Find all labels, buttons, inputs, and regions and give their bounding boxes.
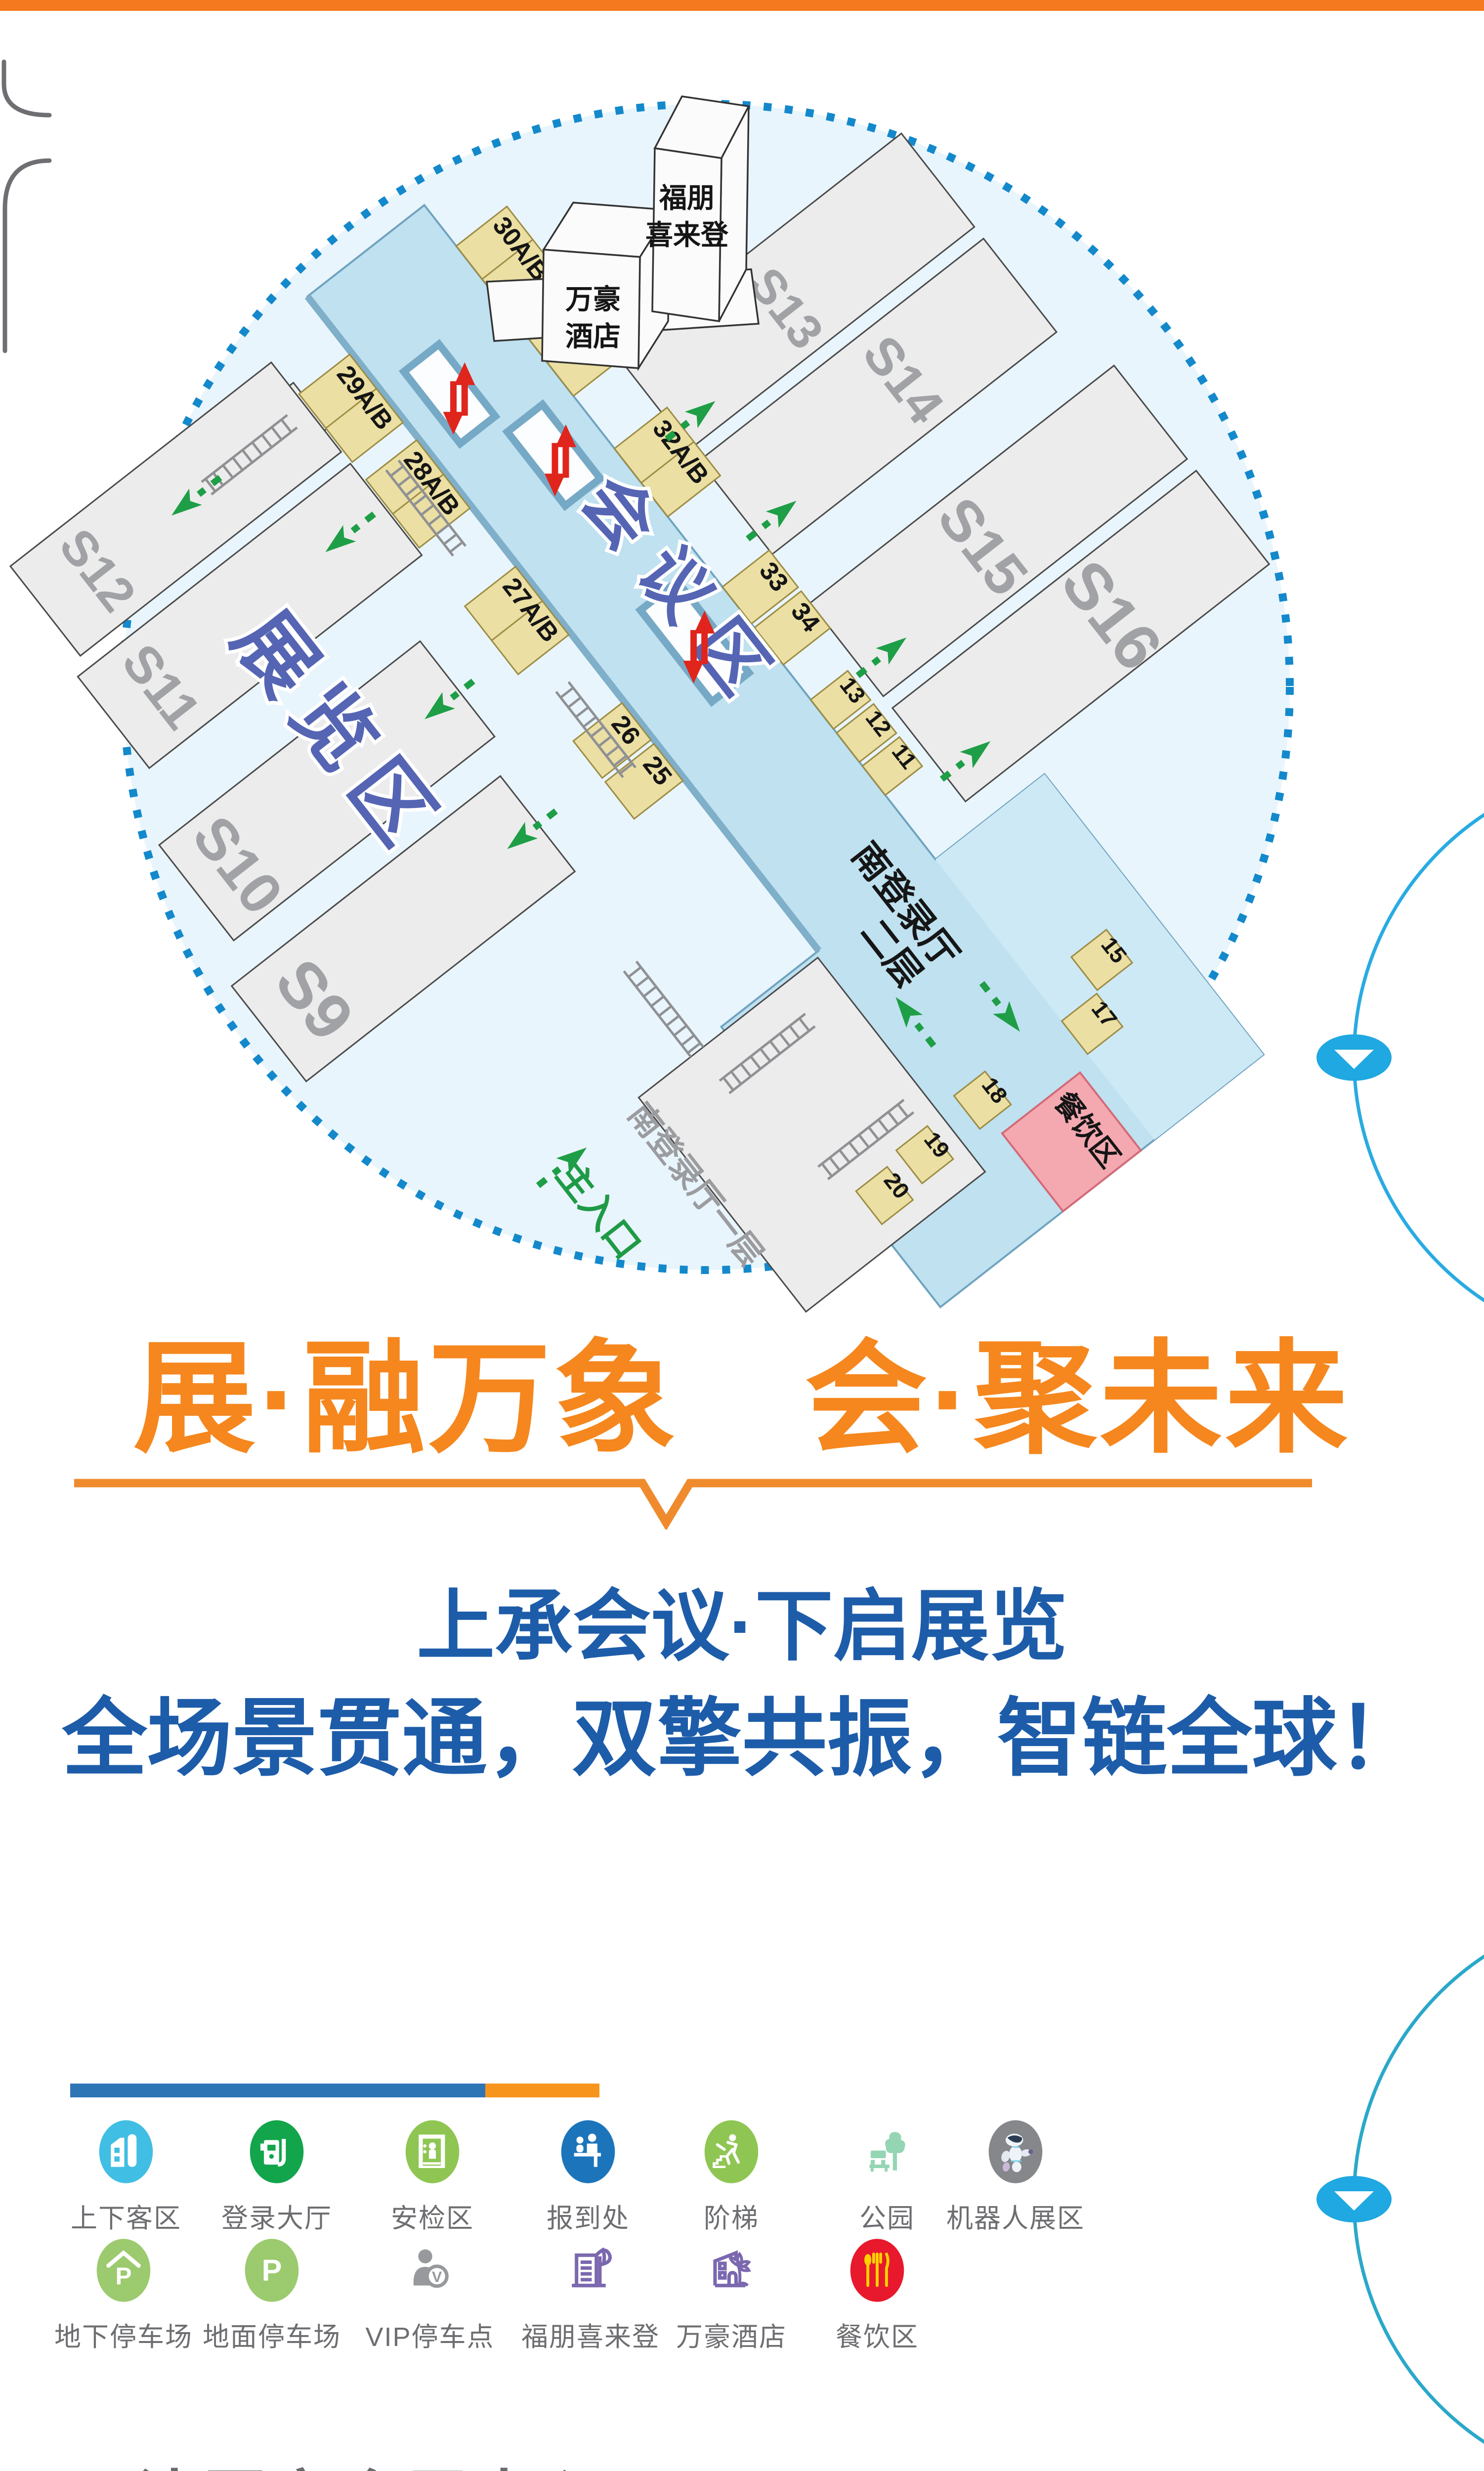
legend-item-four-points: 福朋喜来登 — [516, 2239, 665, 2354]
subtitle-line1: 上承会议·下启展览 — [0, 1587, 1484, 1665]
vip-parking-icon: V — [401, 2239, 459, 2302]
legend-item-marriott: 万豪酒店 — [657, 2239, 806, 2354]
legend-item-underground-parking: P 地下停车场 — [49, 2239, 198, 2354]
stairs-icon — [702, 2120, 761, 2183]
legend-label: 餐饮区 — [803, 2315, 951, 2354]
robot-zone-icon — [986, 2120, 1045, 2183]
bus-stop-icon — [97, 2120, 155, 2183]
four-points-label-1: 福朋 — [659, 182, 715, 213]
four-points-label-2: 喜来登 — [645, 219, 729, 251]
legend-label: 阶梯 — [657, 2196, 806, 2235]
marriott-hotel-icon — [702, 2239, 761, 2302]
right-circle-decoration-1 — [1260, 761, 1484, 1354]
subtitle-line2: 全场景贯通，双擎共振，智链全球！ — [0, 1696, 1484, 1781]
legend-item-dining: 餐饮区 — [803, 2239, 951, 2354]
underground-parking-icon: P — [94, 2239, 153, 2302]
check-in-icon — [559, 2120, 617, 2183]
legend-item-ground-parking: P 地面停车场 — [198, 2239, 346, 2354]
park-icon — [858, 2120, 916, 2183]
venue-title: 天津国家会展中心 — [69, 2449, 607, 2471]
four-points-hotel-icon — [561, 2239, 620, 2302]
legend-label: 机器人展区 — [941, 2196, 1090, 2235]
legend-label: 万豪酒店 — [657, 2315, 806, 2354]
legend-label: 报到处 — [514, 2196, 662, 2235]
headline-underline — [74, 1475, 1319, 1530]
subtitle-block: 上承会议·下启展览 全场景贯通，双擎共振，智链全球！ — [0, 1587, 1484, 1781]
legend-item-bus-stop: 上下客区 — [52, 2120, 200, 2235]
legend-label: 地面停车场 — [198, 2315, 346, 2354]
legend-item-stairs: 阶梯 — [657, 2120, 806, 2235]
vip-letter: V — [432, 2269, 442, 2286]
parking-letter: P — [115, 2262, 131, 2290]
ground-parking-icon: P — [243, 2239, 301, 2302]
dining-icon — [848, 2239, 906, 2302]
legend-label: 地下停车场 — [49, 2315, 198, 2354]
marriott-label-2: 酒店 — [565, 321, 621, 352]
legend-item-check-in: 报到处 — [514, 2120, 662, 2235]
legend-label: VIP停车点 — [356, 2315, 504, 2354]
login-hall-icon — [248, 2120, 306, 2183]
parking-letter: P — [262, 2254, 282, 2288]
legend-divider-bar — [70, 2084, 599, 2097]
poster-page: 展览区 会议区 S12 S11 S10 S9 S13 S14 S15 S16 2… — [0, 0, 1484, 2471]
legend-item-vip-parking: V VIP停车点 — [356, 2239, 504, 2354]
legend-label: 上下客区 — [52, 2196, 200, 2235]
legend-item-security: 安检区 — [358, 2120, 507, 2235]
legend-label: 福朋喜来登 — [516, 2315, 665, 2354]
legend-item-park: 公园 — [813, 2120, 961, 2235]
right-circle-decoration-2 — [1260, 1903, 1484, 2471]
marriott-label-1: 万豪 — [565, 284, 621, 315]
legend-item-robot-zone: 机器人展区 — [941, 2120, 1090, 2235]
legend-item-login-hall: 登录大厅 — [203, 2120, 351, 2235]
legend-label: 登录大厅 — [203, 2196, 351, 2235]
headline: 展·融万象 会·聚未来 — [0, 1334, 1484, 1463]
legend-label: 公园 — [813, 2196, 961, 2235]
security-check-icon — [403, 2120, 462, 2183]
legend-label: 安检区 — [358, 2196, 507, 2235]
